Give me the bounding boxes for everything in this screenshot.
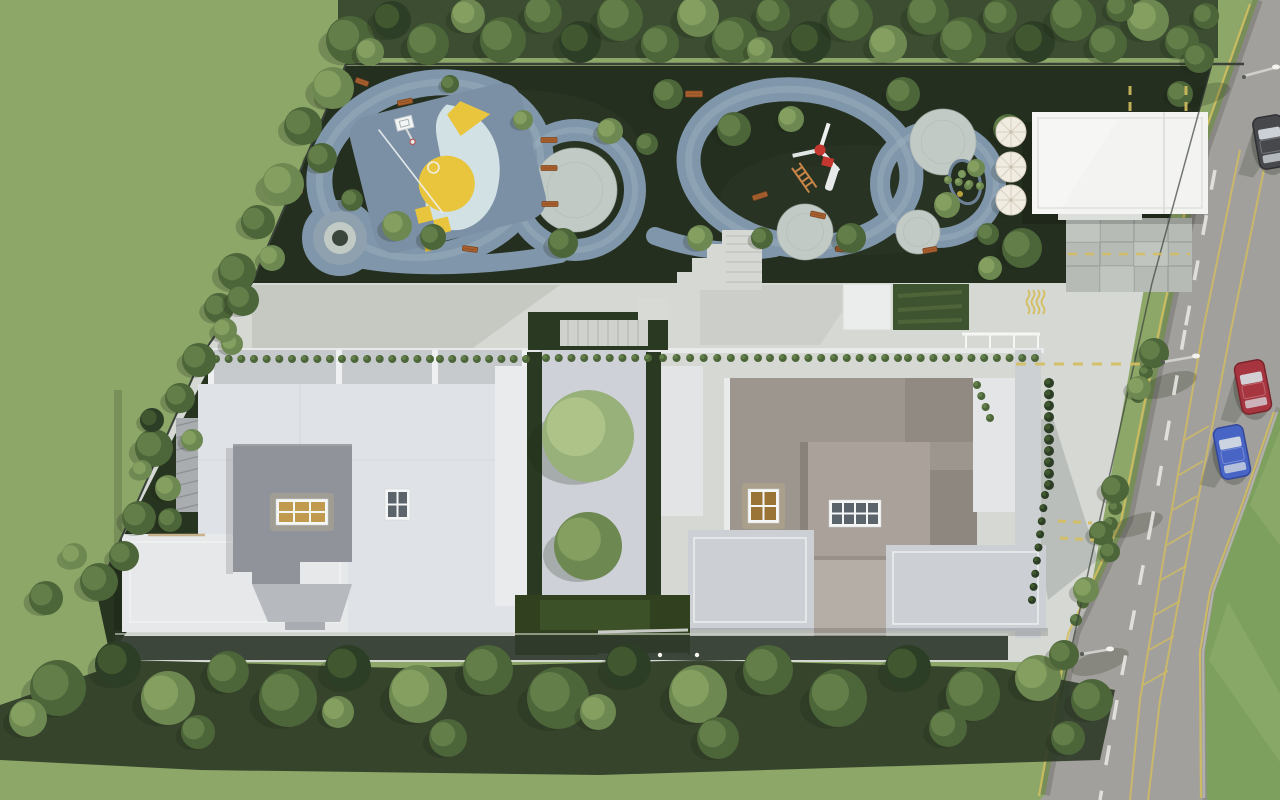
tree-crown-highlight (688, 227, 705, 244)
shrub-highlight (981, 355, 985, 359)
garden-path (598, 630, 688, 632)
courtyard-hedge-west (527, 352, 542, 602)
tree-crown-highlight (514, 112, 527, 125)
shrub-highlight (1042, 492, 1046, 496)
shrub-highlight (755, 355, 759, 359)
shrub-highlight (1037, 531, 1041, 535)
ring-plaza (313, 211, 367, 265)
shrub-highlight (555, 355, 559, 359)
umbrella-pole (1009, 130, 1013, 134)
tree-crown-highlight (133, 462, 146, 475)
shrub-highlight (741, 355, 745, 359)
tree-crown-highlight (1167, 28, 1189, 50)
window-pane (295, 513, 309, 522)
stair-landing (638, 298, 668, 320)
bench (686, 91, 703, 97)
shrub-highlight (966, 181, 970, 185)
tree-crown-highlight (392, 670, 429, 707)
shrub-highlight (1019, 355, 1023, 359)
shrub-highlight (673, 355, 677, 359)
tree-crown-highlight (111, 543, 130, 562)
shrub-highlight (1038, 518, 1042, 522)
shrub-highlight (1030, 583, 1034, 587)
shrub-highlight (251, 356, 255, 360)
tree-crown-highlight (561, 24, 588, 51)
shrub-highlight (581, 355, 585, 359)
tree-crown-highlight (949, 671, 984, 706)
tree-crown-highlight (182, 431, 196, 445)
tree-crown-highlight (309, 145, 328, 164)
shrub-highlight (225, 356, 229, 360)
tree-crown-highlight (791, 24, 818, 51)
shrub-highlight (856, 355, 860, 359)
tree-crown-highlight (779, 108, 796, 125)
entry-canopy-roof (843, 284, 891, 330)
tree-crown-highlight (672, 670, 709, 707)
tree-crown-highlight (699, 720, 726, 747)
tree-crown-highlight (888, 80, 910, 102)
window-pane (399, 506, 408, 518)
tree-crown-highlight (167, 385, 186, 404)
bollard-light (695, 653, 699, 657)
shrub-highlight (968, 355, 972, 359)
shrub-highlight (289, 356, 293, 360)
tree-crown-highlight (124, 504, 146, 526)
shrub-highlight (977, 183, 981, 187)
tree-crown-highlight (1091, 28, 1115, 52)
tree-crown-highlight (442, 76, 454, 88)
roof-notch-shade (905, 378, 977, 442)
tree-crown-highlight (931, 712, 955, 736)
dash-segment (1152, 511, 1154, 520)
plaza-circle (777, 204, 833, 260)
tree-crown-highlight (209, 654, 236, 681)
shrub-highlight (568, 355, 572, 359)
perimeter-walk (115, 634, 1008, 660)
shrub-highlight (1045, 401, 1051, 407)
shrub-highlight (238, 356, 242, 360)
shrub-highlight (660, 355, 664, 359)
shrub-highlight (543, 355, 547, 359)
window-pane (765, 492, 777, 505)
tree-crown-highlight (328, 20, 359, 51)
window-pane (844, 503, 854, 513)
window-pane (388, 506, 397, 518)
tree-crown-highlight (935, 194, 952, 211)
shrub-highlight (473, 356, 477, 360)
tree-crown-highlight (557, 517, 601, 561)
shrub-highlight (606, 355, 610, 359)
tree-crown-highlight (220, 256, 244, 280)
tree-crown-highlight (748, 39, 765, 56)
window-pane (765, 507, 777, 520)
tree-crown-highlight (286, 110, 310, 134)
skylight-window (385, 489, 410, 520)
southeast-terrace (886, 545, 1046, 631)
plaza-circle (533, 148, 617, 232)
tree-crown-highlight (243, 208, 265, 230)
shrub-highlight (727, 355, 731, 359)
shrub-highlight (339, 356, 343, 360)
shrub-highlight (1045, 458, 1051, 464)
shrub-highlight (523, 356, 527, 360)
shrub-highlight (700, 355, 704, 359)
tree-crown-highlight (829, 0, 858, 28)
tree-crown-highlight (547, 397, 606, 456)
tree-crown-highlight (1090, 523, 1105, 538)
shrub-highlight (905, 355, 909, 359)
shrub-highlight (1045, 435, 1051, 441)
tree-crown-highlight (82, 566, 106, 590)
tree-crown-highlight (530, 672, 570, 712)
shrub-highlight (414, 356, 418, 360)
shrub-highlight (1045, 413, 1051, 419)
southwest-terrace (688, 530, 814, 630)
bench (541, 138, 557, 143)
site-plan-canvas (0, 0, 1280, 800)
shrub-highlight (974, 382, 978, 386)
tree-crown-highlight (942, 21, 971, 50)
shrub-highlight (276, 356, 280, 360)
shrub-highlight (1045, 469, 1051, 475)
tree-crown-highlight (1186, 45, 1205, 64)
shrub-highlight (714, 355, 718, 359)
shrub-highlight (1045, 390, 1051, 396)
bench (542, 202, 558, 207)
shrub-highlight (895, 355, 899, 359)
tree-crown-highlight (887, 649, 916, 678)
tree-crown-highlight (141, 410, 156, 425)
tree-crown-highlight (655, 81, 674, 100)
shrub-highlight (687, 355, 691, 359)
tree-crown-highlight (1074, 579, 1091, 596)
shrub-highlight (1040, 505, 1044, 509)
tree-crown-highlight (314, 70, 341, 97)
tree-crown-highlight (746, 649, 778, 681)
tree-crown-highlight (33, 664, 69, 700)
window-pane (399, 492, 408, 504)
shrub-highlight (982, 404, 986, 408)
skylight-window (829, 500, 881, 527)
tree-crown-highlight (607, 647, 636, 676)
shrub-highlight (869, 355, 873, 359)
tree-crown-highlight (599, 0, 628, 28)
tree-crown-highlight (260, 247, 277, 264)
window-pane (311, 513, 325, 522)
shrub-highlight (978, 393, 982, 397)
window-pane (856, 515, 866, 525)
tree-crown-highlight (985, 2, 1007, 24)
shrub-highlight (327, 356, 331, 360)
patio-umbrellas (991, 117, 1026, 217)
shrub-highlight (498, 356, 502, 360)
tree-crown-highlight (838, 225, 857, 244)
tree-crown-highlight (812, 674, 849, 711)
tree-crown-highlight (214, 320, 229, 335)
tree-crown-highlight (144, 675, 179, 710)
skylight-window (742, 483, 785, 529)
pavilion-step (1058, 214, 1142, 220)
window-pane (388, 492, 397, 504)
courtyard-flank-west (495, 366, 527, 606)
tree-crown-highlight (137, 432, 161, 456)
shrub-highlight (955, 179, 959, 183)
tree-crown-highlight (550, 230, 569, 249)
shrub-highlight (994, 355, 998, 359)
tree-crown-highlight (1053, 724, 1075, 746)
shrub-highlight (767, 355, 771, 359)
tree-crown-highlight (183, 718, 205, 740)
tree-crown-highlight (156, 477, 173, 494)
shrub-highlight (1035, 544, 1039, 548)
shrub-highlight (461, 356, 465, 360)
site-plan-render (0, 0, 1280, 800)
shrub-highlight (930, 355, 934, 359)
skylight-window (270, 493, 334, 531)
shrub-highlight (389, 356, 393, 360)
window-pane (832, 503, 842, 513)
tree-crown-highlight (1017, 659, 1046, 688)
shrub-highlight (1032, 355, 1036, 359)
shrub-highlight (1032, 570, 1036, 574)
shrub-highlight (594, 355, 598, 359)
tree-crown-highlight (978, 225, 992, 239)
shrub-highlight (1029, 597, 1033, 601)
tile-light-cell (1100, 266, 1134, 292)
tree-crown-highlight (431, 722, 455, 746)
window-pane (844, 515, 854, 525)
window-pane (295, 502, 309, 511)
tree-crown-highlight (643, 28, 667, 52)
shrub-highlight (1071, 615, 1078, 622)
shrub-highlight (437, 356, 441, 360)
right-building-shadow (688, 628, 1048, 636)
window-pane (751, 507, 763, 520)
shrub-highlight (427, 356, 431, 360)
tree-crown-highlight (1101, 544, 1114, 557)
window-pane (868, 515, 878, 525)
shrub-highlight (955, 355, 959, 359)
tree-crown-highlight (409, 26, 436, 53)
window-pane (279, 502, 293, 511)
umbrella-pole (1009, 165, 1013, 169)
tree-crown-highlight (384, 213, 403, 232)
bench (541, 166, 557, 171)
shrub-highlight (1045, 424, 1051, 430)
window-pane (868, 503, 878, 513)
tree-crown-highlight (582, 697, 605, 720)
tree-crown-highlight (159, 510, 174, 525)
tree-crown-highlight (342, 191, 356, 205)
shrub-highlight (945, 177, 949, 181)
tree-crown-highlight (327, 649, 356, 678)
shrub-highlight (818, 355, 822, 359)
shrub-highlight (1033, 557, 1037, 561)
tree-crown-highlight (262, 674, 299, 711)
window-pane (751, 492, 763, 505)
tree-crown-highlight (1128, 378, 1143, 393)
tree-crown-highlight (752, 229, 766, 243)
shrub-highlight (843, 355, 847, 359)
shrub-highlight (792, 355, 796, 359)
south-apron (814, 560, 886, 638)
penthouse-step (285, 622, 325, 630)
tree-crown-highlight (206, 295, 225, 314)
tree-crown-highlight (375, 4, 399, 28)
shrub-highlight (805, 355, 809, 359)
tree-crown-highlight (1004, 231, 1030, 257)
shrub-highlight (1006, 355, 1010, 359)
shrub-highlight (510, 356, 514, 360)
shrub-highlight (645, 355, 649, 359)
shrub-highlight (779, 355, 783, 359)
tree-crown-highlight (482, 21, 511, 50)
tree-crown-highlight (1073, 682, 1100, 709)
courtyard-flank-east (661, 366, 703, 516)
bollard-light (658, 653, 662, 657)
tree-crown-highlight (598, 120, 615, 137)
tree-crown-highlight (62, 545, 79, 562)
shrub-highlight (882, 355, 886, 359)
tree-crown-highlight (31, 584, 53, 606)
shrub-highlight (1045, 447, 1051, 453)
tree-crown-highlight (637, 135, 651, 149)
tree-crown-highlight (466, 649, 498, 681)
roof-terrace-row (212, 350, 528, 386)
tree-crown-highlight (979, 258, 994, 273)
shrub-highlight (831, 355, 835, 359)
shrub-highlight (301, 356, 305, 360)
tree-crown-highlight (453, 2, 475, 24)
courtyard-hedge-east (646, 352, 661, 602)
penthouse-shadow (226, 448, 233, 574)
shrub-highlight (1045, 481, 1051, 487)
dash-segment (1100, 791, 1102, 800)
umbrella-pole (1009, 198, 1013, 202)
shrub-highlight (943, 355, 947, 359)
tree-crown-highlight (184, 346, 206, 368)
window-pane (832, 515, 842, 525)
tree-crown-highlight (1015, 24, 1042, 51)
tree-crown-highlight (229, 287, 249, 307)
shrub-highlight (263, 356, 267, 360)
left-building-shadow (114, 390, 122, 630)
tree-crown-highlight (714, 21, 743, 50)
window-pane (279, 513, 293, 522)
courtyard-south-green-inner (540, 600, 650, 630)
tree-crown-highlight (324, 699, 344, 719)
tree-crown-highlight (1168, 83, 1185, 100)
shrub-highlight (314, 356, 318, 360)
shrub-highlight (1045, 379, 1051, 385)
shrub-highlight (449, 356, 453, 360)
tree-crown-highlight (264, 166, 291, 193)
shrub-highlight (917, 355, 921, 359)
window-pane (856, 503, 866, 513)
shrub-highlight (987, 415, 991, 419)
tree-crown-highlight (11, 702, 35, 726)
walk-band (115, 636, 1008, 660)
shrub-highlight (486, 356, 490, 360)
tree-crown-highlight (1194, 5, 1211, 22)
shrub-highlight (632, 355, 636, 359)
tree-crown-highlight (97, 645, 126, 674)
tree-crown-highlight (758, 0, 780, 21)
tree-crown-highlight (1102, 477, 1120, 495)
shrub-highlight (376, 356, 380, 360)
shrub-highlight (619, 355, 623, 359)
shrub-highlight (364, 356, 368, 360)
tree-crown-highlight (1052, 0, 1081, 28)
tree-crown-highlight (871, 28, 895, 52)
tree-crown-highlight (719, 115, 741, 137)
tree-crown-highlight (968, 160, 980, 172)
penthouse-apron (252, 584, 352, 622)
tree-crown-highlight (357, 40, 375, 58)
shrub-highlight (351, 356, 355, 360)
shrub-highlight (401, 356, 405, 360)
tree-crown-highlight (1051, 642, 1070, 661)
window-pane (311, 502, 325, 511)
tree-crown-highlight (1141, 340, 1160, 359)
tree-crown-highlight (421, 226, 438, 243)
